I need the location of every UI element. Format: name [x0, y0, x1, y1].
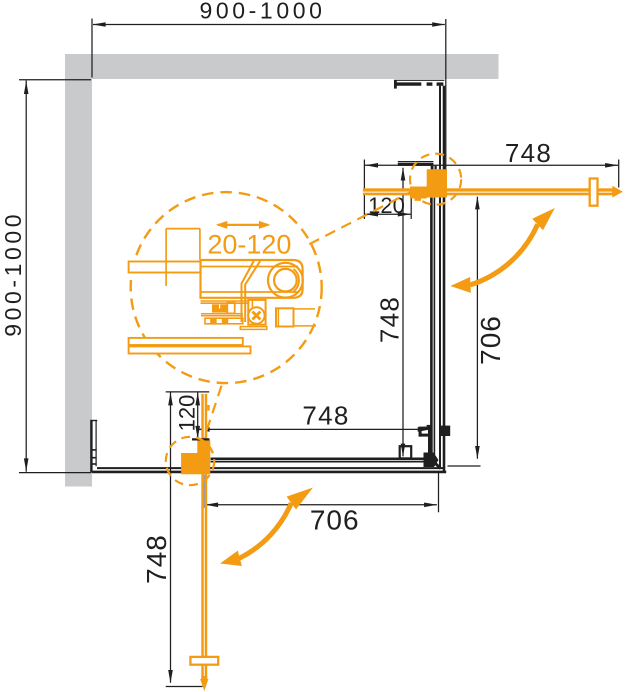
svg-text:120: 120: [175, 395, 200, 432]
svg-text:20-120: 20-120: [207, 230, 291, 260]
svg-text:748: 748: [141, 534, 172, 584]
svg-text:120: 120: [368, 193, 405, 218]
svg-text:706: 706: [310, 505, 360, 536]
svg-text:706: 706: [475, 315, 506, 365]
svg-text:748: 748: [375, 296, 405, 343]
svg-text:748: 748: [302, 401, 349, 431]
svg-text:900-1000: 900-1000: [200, 0, 326, 23]
svg-text:900-1000: 900-1000: [0, 211, 26, 337]
svg-text:748: 748: [505, 138, 552, 168]
